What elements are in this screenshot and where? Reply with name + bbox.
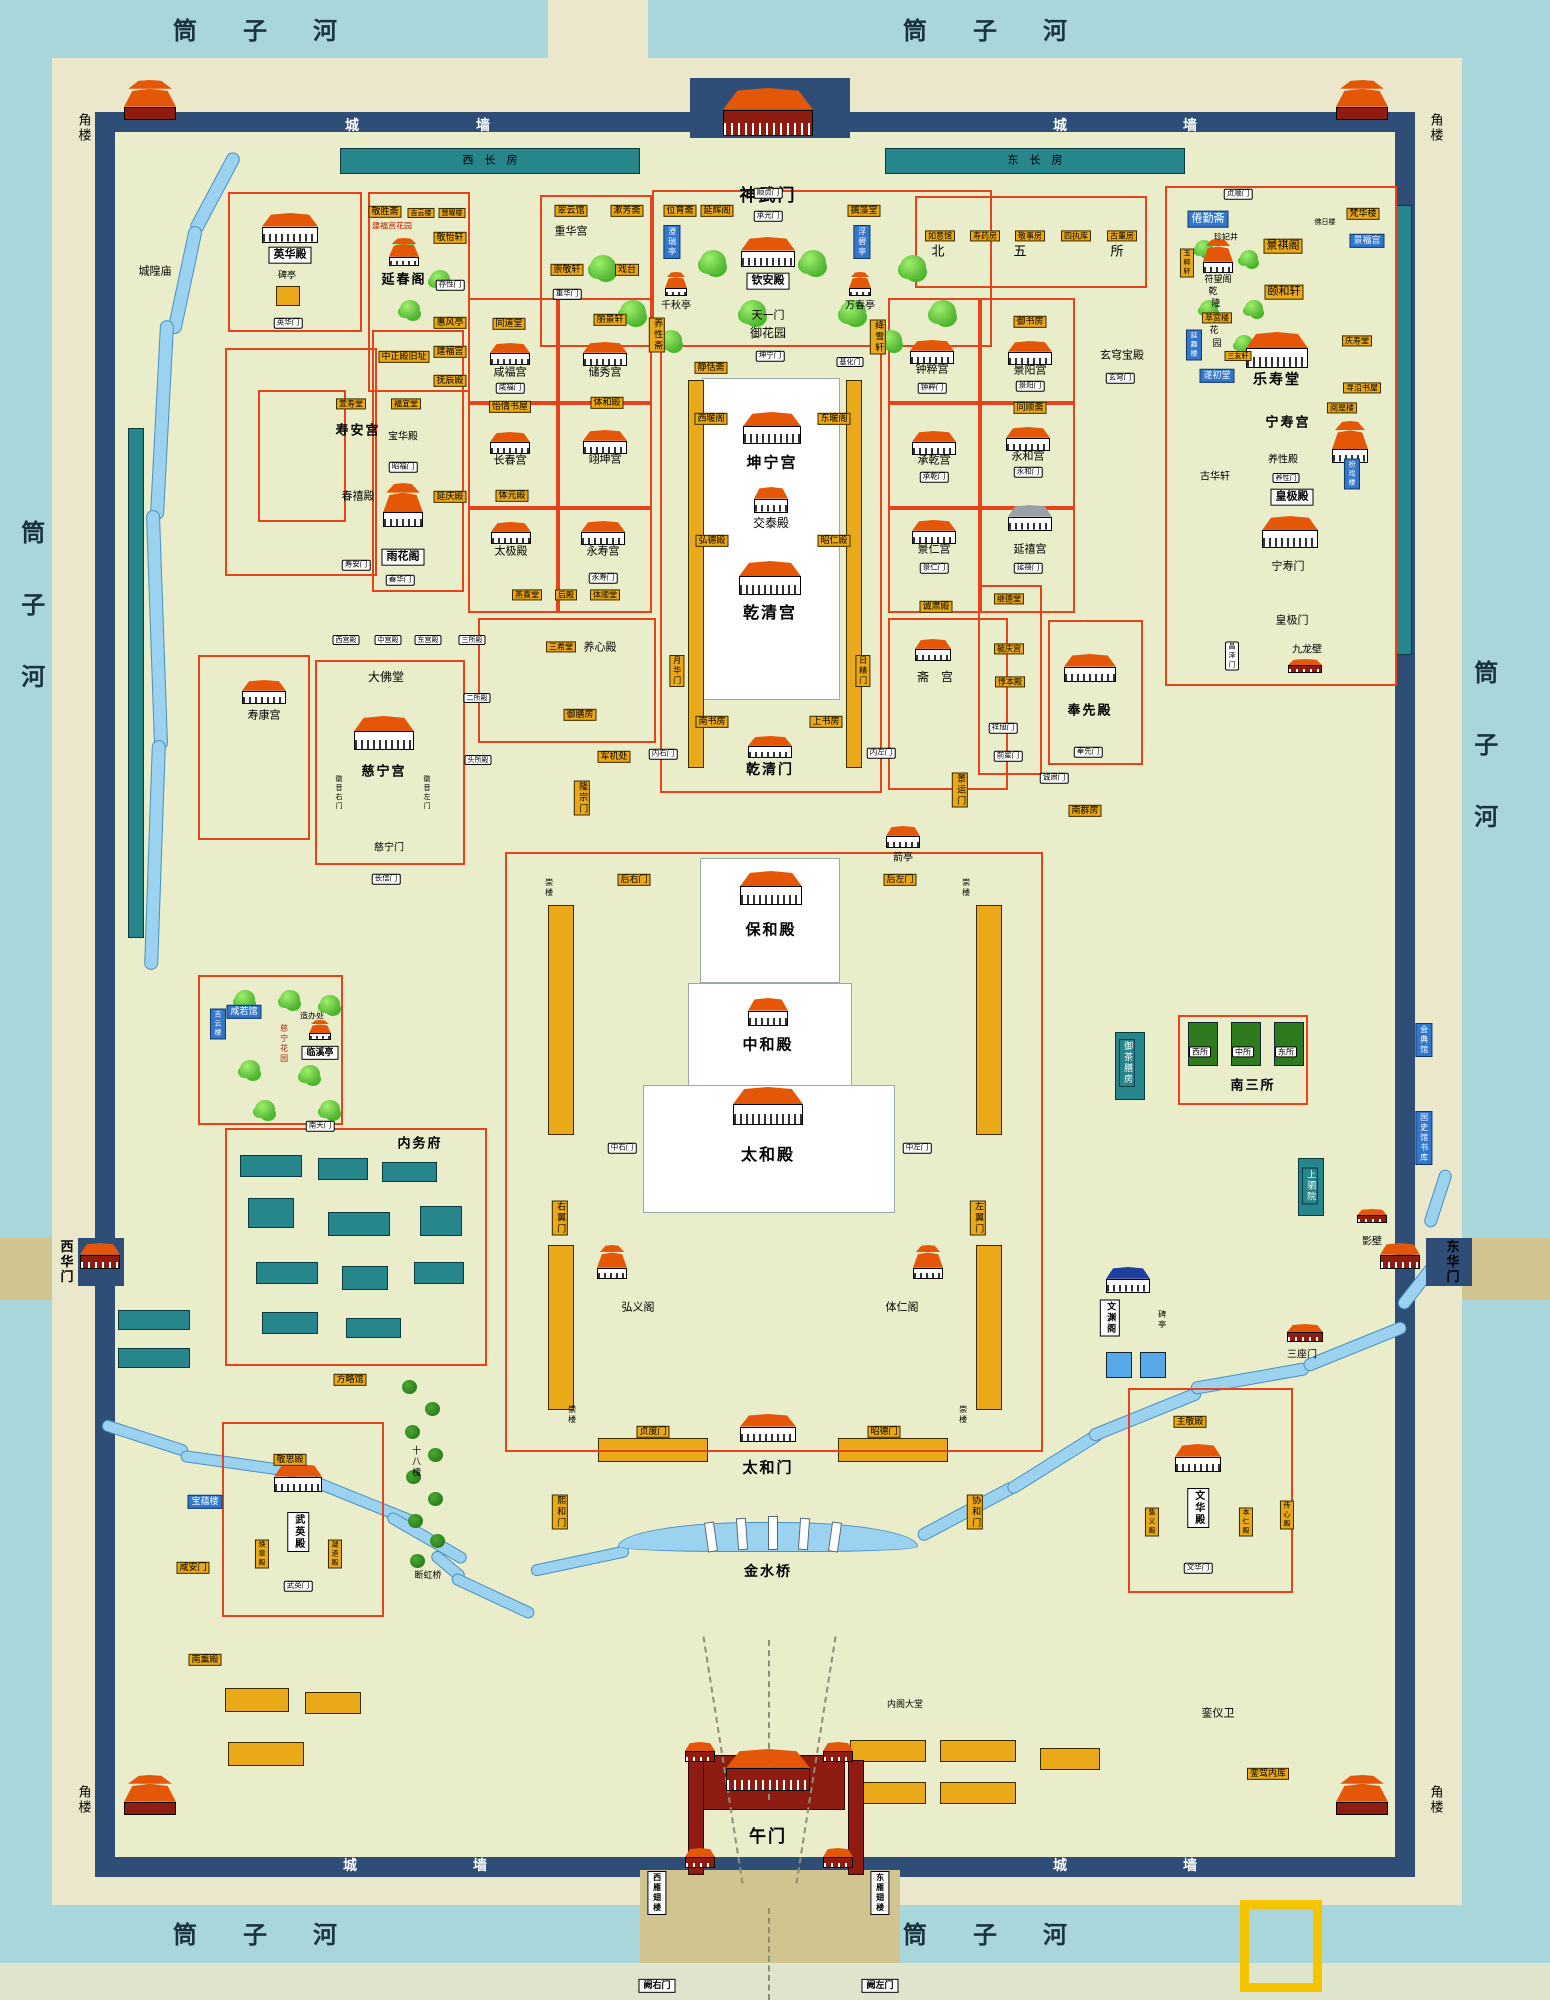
- icon-roof: [912, 520, 956, 531]
- label-寿康宫: 寿康宫: [248, 710, 281, 723]
- label-戏台: 戏台: [615, 264, 639, 276]
- icon-body: [665, 288, 687, 296]
- shenwumen-icon: [723, 88, 813, 136]
- label-城隍庙: 城隍庙: [139, 266, 172, 279]
- shape-bridge: [736, 1518, 748, 1551]
- shape-tr: [118, 1310, 190, 1330]
- label-南薰殿: 南薰殿: [188, 1654, 221, 1666]
- label-隆: 隆: [1211, 299, 1220, 309]
- label-建福宫: 建福宫: [433, 346, 466, 358]
- label-长春宫: 长春宫: [494, 455, 527, 468]
- label-上驷院: 上驷院: [1302, 1168, 1318, 1205]
- label-左翼门: 左翼门: [970, 1201, 986, 1236]
- label-体和殿: 体和殿: [590, 397, 623, 409]
- icon-body: [741, 251, 795, 268]
- icon-upper-roof: [849, 272, 871, 277]
- label-凝道殿: 凝道殿: [328, 1540, 342, 1569]
- label-城: 城: [1053, 1858, 1067, 1874]
- linxiting-icon: [309, 1020, 331, 1040]
- label-内右门: 内右门: [649, 749, 678, 760]
- qinandian-icon: [741, 237, 795, 267]
- label-皇极殿: 皇极殿: [1271, 489, 1314, 506]
- label-南群房: 南群房: [1068, 805, 1101, 817]
- label-前星门: 前星门: [994, 751, 1023, 762]
- icon-roof: [849, 277, 871, 288]
- icon-body: [685, 1857, 715, 1868]
- label-建福宫花园: 建福宫花园: [372, 221, 412, 230]
- xichangfang: 西 长 房: [463, 155, 518, 168]
- icon-body: [748, 1011, 788, 1026]
- label-西所: 西所: [1189, 1046, 1211, 1057]
- label-墙: 墙: [476, 118, 490, 134]
- icon-roof: [583, 430, 627, 441]
- icon-upper-roof: [597, 1245, 627, 1252]
- label-玄穹门: 玄穹门: [1106, 373, 1135, 384]
- icon-roof: [1006, 427, 1050, 438]
- icon-roof: [1287, 1324, 1323, 1332]
- shape-treed: [405, 1425, 420, 1439]
- label-崇楼: 崇楼: [961, 878, 970, 898]
- corner-tower-nw-icon: [124, 80, 176, 120]
- label-东所: 东所: [1275, 1046, 1297, 1057]
- icon-body: [309, 1033, 331, 1040]
- yanxigong-icon: [1008, 505, 1052, 531]
- label-銮仪卫: 銮仪卫: [1202, 1708, 1235, 1721]
- label-储秀宫: 储秀宫: [589, 367, 622, 380]
- label-后右门: 后右门: [617, 874, 650, 886]
- icon-body: [739, 576, 801, 595]
- label-月华门: 月华门: [669, 655, 684, 687]
- icon-roof: [383, 493, 423, 513]
- icon-upper-roof: [309, 1020, 331, 1024]
- label-吉云楼: 吉云楼: [408, 208, 435, 218]
- label-萃赏楼: 萃赏楼: [1202, 312, 1232, 323]
- icon-body: [389, 257, 419, 266]
- label-宝蕴楼: 宝蕴楼: [187, 1495, 222, 1509]
- label-遂初堂: 遂初堂: [1199, 369, 1234, 383]
- qianqingmen-icon: [748, 736, 792, 758]
- fuwangge-icon: [1203, 239, 1233, 273]
- icon-body: [1064, 667, 1116, 682]
- label-中宫殿: 中宫殿: [375, 635, 402, 645]
- icon-roof: [1332, 430, 1368, 449]
- icon-roof: [597, 1252, 627, 1267]
- label-銮驾内库: 銮驾内库: [1247, 1768, 1289, 1780]
- icon-roof: [1357, 1209, 1387, 1215]
- label-崇楼: 崇楼: [958, 1405, 967, 1425]
- icon-body: [597, 1268, 627, 1279]
- label-武英门: 武英门: [284, 1581, 313, 1592]
- court-beiwusuo: [915, 196, 1147, 288]
- fengxiandian-icon: [1064, 654, 1116, 682]
- label-宁寿门: 宁寿门: [1272, 561, 1305, 574]
- label-景仁宫: 景仁宫: [918, 544, 951, 557]
- icon-roof: [124, 1784, 176, 1802]
- label-筒子河: 筒子河: [127, 18, 383, 46]
- xihuamen-icon: [80, 1243, 120, 1269]
- label-保和殿: 保和殿: [745, 921, 796, 938]
- shape-gr: [940, 1782, 1016, 1804]
- shape-ic: [685, 1848, 715, 1868]
- label-慈宁宫: 慈宁宫: [361, 766, 406, 781]
- shape-bridge: [768, 1516, 778, 1550]
- icon-upper-roof: [913, 1245, 943, 1252]
- icon-body: [1203, 262, 1233, 273]
- yingbi-icon: [1357, 1209, 1387, 1223]
- label-奉先门: 奉先门: [1074, 747, 1103, 758]
- label-筒子河: 筒子河: [16, 520, 44, 736]
- label-承光门: 承光门: [754, 211, 783, 222]
- shape-ic: [581, 521, 625, 545]
- icon-roof: [1380, 1243, 1420, 1255]
- court-shouangong-inner: [258, 390, 346, 522]
- icon-roof: [1008, 341, 1052, 352]
- label-城: 城: [343, 1858, 357, 1874]
- label-乐寿堂: 乐寿堂: [1253, 372, 1301, 388]
- label-主敬殿: 主敬殿: [1173, 1416, 1206, 1428]
- baohedian-icon: [740, 871, 802, 905]
- qianqiuting-icon: [665, 272, 687, 296]
- icon-roof: [354, 716, 414, 731]
- icon-body: [354, 731, 414, 750]
- wenyuange-icon: [1106, 1267, 1150, 1293]
- zhonghedian-icon: [748, 998, 788, 1026]
- label-重华门: 重华门: [553, 289, 582, 300]
- label-十八槐: 十八槐: [410, 1446, 420, 1479]
- label-焕章殿: 焕章殿: [255, 1540, 269, 1569]
- icon-body: [1106, 1279, 1150, 1293]
- icon-roof: [748, 998, 788, 1011]
- jianting-icon: [886, 826, 920, 848]
- label-西华门: 西华门: [57, 1240, 72, 1285]
- label-隆宗门: 隆宗门: [574, 781, 590, 816]
- icon-roof: [743, 412, 801, 426]
- shape-tree: [240, 1060, 260, 1078]
- label-翊坤宫: 翊坤宫: [589, 454, 622, 467]
- label-佛日楼: 佛日楼: [1315, 218, 1336, 226]
- label-昌泽门: 昌泽门: [1225, 642, 1239, 671]
- label-毓庆宫: 毓庆宫: [994, 643, 1024, 654]
- label-太和门: 太和门: [742, 1459, 793, 1476]
- label-南天门: 南天门: [306, 1121, 335, 1132]
- label-影壁: 影壁: [1362, 1236, 1382, 1248]
- label-吉云楼: 吉云楼: [210, 1009, 226, 1040]
- icon-body: [1380, 1255, 1420, 1269]
- icon-body: [823, 1751, 853, 1762]
- icon-body: [581, 532, 625, 545]
- icon-upper-roof: [383, 483, 423, 493]
- label-敬思殿: 敬思殿: [273, 1454, 306, 1466]
- label-绛雪轩: 绛雪轩: [870, 320, 886, 355]
- icon-roof: [583, 342, 627, 353]
- label-慧曜楼: 慧曜楼: [439, 208, 466, 218]
- label-墙: 墙: [1183, 1858, 1197, 1874]
- icon-body: [726, 1768, 810, 1791]
- wanchunting-icon: [849, 272, 871, 296]
- shape-tree: [280, 990, 300, 1008]
- label-敬胜斋: 敬胜斋: [368, 206, 401, 218]
- label-体仁阁: 体仁阁: [886, 1302, 919, 1315]
- icon-body: [849, 288, 871, 296]
- label-协和门: 协和门: [967, 1495, 983, 1530]
- icon-roof: [726, 1749, 810, 1768]
- label-角楼: 角楼: [75, 113, 90, 143]
- label-西雁翅楼: 西雁翅楼: [647, 1871, 666, 1915]
- label-钟粹门: 钟粹门: [918, 383, 947, 394]
- label-宝华殿: 宝华殿: [388, 431, 418, 443]
- label-英华殿: 英华殿: [269, 247, 312, 264]
- icon-body: [1246, 348, 1308, 368]
- label-澄瑞亭: 澄瑞亭: [663, 225, 680, 259]
- label-承乾宫: 承乾宫: [918, 455, 951, 468]
- label-角楼: 角楼: [1427, 1785, 1442, 1815]
- label-位育斋: 位育斋: [663, 205, 696, 217]
- icon-roof: [740, 1414, 796, 1427]
- label-御书房: 御书房: [1013, 316, 1046, 328]
- label-内阁大堂: 内阁大堂: [887, 1700, 923, 1710]
- yanchunge-icon: [389, 238, 419, 266]
- label-寿药房: 寿药房: [970, 230, 1000, 241]
- label-养心殿: 养心殿: [584, 642, 617, 655]
- north-causeway: [548, 0, 648, 58]
- shape-br: [1106, 1352, 1132, 1378]
- icon-roof: [1175, 1444, 1221, 1457]
- shape-ic: [685, 1742, 715, 1762]
- label-梵华楼: 梵华楼: [1346, 208, 1379, 220]
- icon-body: [723, 110, 813, 136]
- label-养性殿: 养性殿: [1268, 454, 1298, 466]
- label-弘德殿: 弘德殿: [695, 535, 728, 547]
- label-抚辰殿: 抚辰殿: [433, 375, 466, 387]
- label-崇楼: 崇楼: [567, 1405, 576, 1425]
- label-三友轩: 三友轩: [1225, 351, 1252, 361]
- label-内务府: 内务府: [397, 1138, 442, 1153]
- shape-dash: [768, 1908, 770, 2000]
- forbidden-city-map: 筒子河筒子河筒子河筒子河筒子河筒子河城墙城墙城墙城墙角楼角楼角楼角楼神武门西 长…: [0, 0, 1550, 2000]
- label-乾: 乾: [1208, 287, 1217, 297]
- label-会典馆: 会典馆: [1415, 1023, 1432, 1057]
- label-中所: 中所: [1232, 1046, 1254, 1057]
- label-万春亭: 万春亭: [845, 300, 875, 312]
- moat-left: [0, 58, 52, 1905]
- label-墙: 墙: [1183, 118, 1197, 134]
- shape-ic: [912, 431, 956, 455]
- label-珍妃井: 珍妃井: [1214, 232, 1238, 241]
- label-四执库: 四执库: [1061, 230, 1091, 241]
- label-长信门: 长信门: [372, 874, 401, 885]
- label-临溪亭: 临溪亭: [301, 1046, 338, 1060]
- label-永寿门: 永寿门: [589, 573, 618, 584]
- icon-body: [1287, 1332, 1323, 1342]
- label-慈宁门: 慈宁门: [374, 842, 404, 854]
- icon-body: [1262, 530, 1318, 548]
- shape-tree: [900, 255, 926, 279]
- label-西宫殿: 西宫殿: [333, 635, 360, 645]
- icon-body: [274, 1477, 322, 1492]
- icon-roof: [915, 639, 951, 649]
- label-同顺斋: 同顺斋: [1013, 402, 1046, 414]
- label-乾清门: 乾清门: [746, 762, 794, 778]
- icon-roof: [912, 431, 956, 442]
- corner-tower-se-icon: [1336, 1775, 1388, 1815]
- shape-tree: [400, 300, 420, 318]
- icon-roof: [389, 244, 419, 257]
- icon-body: [740, 886, 802, 905]
- court-fengxiandian: [1048, 620, 1143, 765]
- label-同道堂: 同道堂: [492, 318, 525, 330]
- label-景阳宫: 景阳宫: [1014, 365, 1047, 378]
- label-雨花阁: 雨花阁: [382, 549, 425, 566]
- label-阙左门: 阙左门: [861, 1979, 898, 1993]
- shape-tree: [800, 250, 826, 274]
- icon-body: [754, 499, 788, 513]
- label-阙右门: 阙右门: [638, 1979, 675, 1993]
- label-景祺阁: 景祺阁: [1264, 239, 1303, 254]
- shape-ic: [583, 342, 627, 366]
- label-延禧门: 延禧门: [1014, 563, 1043, 574]
- label-造办处: 造办处: [300, 1011, 324, 1020]
- label-皇极门: 皇极门: [1276, 615, 1309, 628]
- label-西暖阁: 西暖阁: [694, 413, 727, 425]
- label-坤宁宫: 坤宁宫: [746, 454, 797, 471]
- label-漱芳斋: 漱芳斋: [610, 205, 643, 217]
- label-所: 所: [1110, 246, 1123, 261]
- label-惠风亭: 惠风亭: [433, 317, 466, 329]
- label-北: 北: [931, 246, 944, 261]
- label-诚肃门: 诚肃门: [1040, 773, 1069, 784]
- icon-body: [80, 1255, 120, 1269]
- icon-roof: [124, 89, 176, 107]
- label-福宜堂: 福宜堂: [391, 398, 421, 409]
- icon-roof: [739, 561, 801, 576]
- label-承乾门: 承乾门: [920, 472, 949, 483]
- court-neiwufu: [225, 1128, 487, 1366]
- icon-roof: [1246, 332, 1308, 348]
- icon-roof: [754, 487, 788, 499]
- icon-body: [886, 836, 920, 848]
- label-箭亭: 箭亭: [893, 852, 913, 864]
- label-城: 城: [1053, 118, 1067, 134]
- label-静恬斋: 静恬斋: [694, 362, 727, 374]
- icon-body: [383, 512, 423, 527]
- jiaotaidian-icon: [754, 487, 788, 513]
- icon-roof: [1336, 1784, 1388, 1802]
- leshoutang-icon: [1246, 332, 1308, 368]
- icon-roof: [491, 522, 531, 532]
- label-军机处: 军机处: [597, 751, 630, 763]
- label-崇敬轩: 崇敬轩: [550, 264, 583, 276]
- label-千秋亭: 千秋亭: [661, 300, 691, 312]
- icon-body: [242, 691, 286, 704]
- label-太极殿: 太极殿: [495, 546, 528, 559]
- yinghuadian-icon: [262, 213, 318, 243]
- label-昭福门: 昭福门: [389, 462, 418, 473]
- icon-upper-roof: [124, 1775, 176, 1784]
- label-国史馆书库: 国史馆书库: [1415, 1111, 1432, 1165]
- label-中左门: 中左门: [903, 1143, 932, 1154]
- icon-body: [262, 227, 318, 244]
- label-昭德门: 昭德门: [867, 1426, 900, 1438]
- label-天一门: 天一门: [752, 310, 785, 323]
- label-春华门: 春华门: [386, 575, 415, 586]
- icon-body: [491, 532, 531, 544]
- shape-ic: [491, 522, 531, 544]
- label-景阳门: 景阳门: [1016, 381, 1045, 392]
- wumen-plaza: [640, 1870, 900, 1906]
- label-中右门: 中右门: [608, 1143, 637, 1154]
- label-倦勤斋: 倦勤斋: [1188, 211, 1229, 228]
- icon-body: [1175, 1457, 1221, 1472]
- label-东华门: 东华门: [1443, 1240, 1458, 1285]
- label-御膳房: 御膳房: [563, 709, 596, 721]
- label-咸福门: 咸福门: [496, 383, 525, 394]
- icon-upper-roof: [665, 272, 687, 277]
- label-文华殿: 文华殿: [1187, 1488, 1209, 1528]
- label-延庆殿: 延庆殿: [433, 491, 466, 503]
- label-慈宁花园: 慈宁花园: [279, 1024, 288, 1064]
- label-头所殿: 头所殿: [465, 755, 492, 765]
- label-古华轩: 古华轩: [1200, 471, 1230, 483]
- label-敬怡轩: 敬怡轩: [433, 232, 466, 244]
- shape-ic: [583, 430, 627, 454]
- shape-gr: [1040, 1748, 1100, 1770]
- wuyingdian-icon: [274, 1464, 322, 1492]
- icon-upper-roof: [124, 80, 176, 89]
- label-玄穹宝殿: 玄穹宝殿: [1100, 350, 1144, 363]
- label-永和门: 永和门: [1014, 467, 1043, 478]
- shape-tr: [1396, 205, 1412, 655]
- label-体顺堂: 体顺堂: [590, 589, 620, 600]
- label-养性斋: 养性斋: [649, 318, 665, 353]
- label-午门: 午门: [749, 1828, 787, 1848]
- icon-upper-roof: [389, 238, 419, 244]
- label-中和殿: 中和殿: [742, 1036, 793, 1053]
- label-敬事房: 敬事房: [1015, 230, 1045, 241]
- shape-ic: [1006, 427, 1050, 451]
- label-丽景轩: 丽景轩: [593, 314, 626, 326]
- label-延辉阁: 延辉阁: [700, 205, 733, 217]
- icon-roof: [823, 1742, 853, 1751]
- label-日精门: 日精门: [855, 655, 870, 687]
- label-徽音左门: 徽音左门: [423, 775, 431, 811]
- icon-body: [740, 1427, 796, 1442]
- east-causeway: [1462, 1238, 1550, 1300]
- label-怡情书屋: 怡情书屋: [489, 401, 531, 413]
- moat-right: [1462, 58, 1550, 1905]
- label-寿安门: 寿安门: [342, 560, 371, 571]
- shape-treed: [410, 1554, 425, 1568]
- shape-ic: [912, 520, 956, 544]
- cininggong-icon: [354, 716, 414, 750]
- icon-body: [743, 426, 801, 444]
- icon-body: [1336, 107, 1388, 120]
- label-斋 宫: 斋 宫: [917, 671, 953, 685]
- label-养性门: 养性门: [1273, 473, 1300, 483]
- label-贞度门: 贞度门: [636, 1426, 669, 1438]
- label-咸福宫: 咸福宫: [494, 367, 527, 380]
- label-集义殿: 集义殿: [1145, 1508, 1159, 1537]
- tirenge-icon: [913, 1245, 943, 1279]
- wenhuadian-icon: [1175, 1444, 1221, 1472]
- label-徽音右门: 徽音右门: [335, 775, 343, 811]
- icon-body: [685, 1751, 715, 1762]
- icon-roof: [581, 521, 625, 532]
- label-金水桥: 金水桥: [744, 1564, 792, 1580]
- shape-tree: [320, 1100, 340, 1118]
- icon-body: [1336, 1802, 1388, 1815]
- icon-roof: [723, 88, 813, 110]
- label-延春阁: 延春阁: [381, 274, 426, 289]
